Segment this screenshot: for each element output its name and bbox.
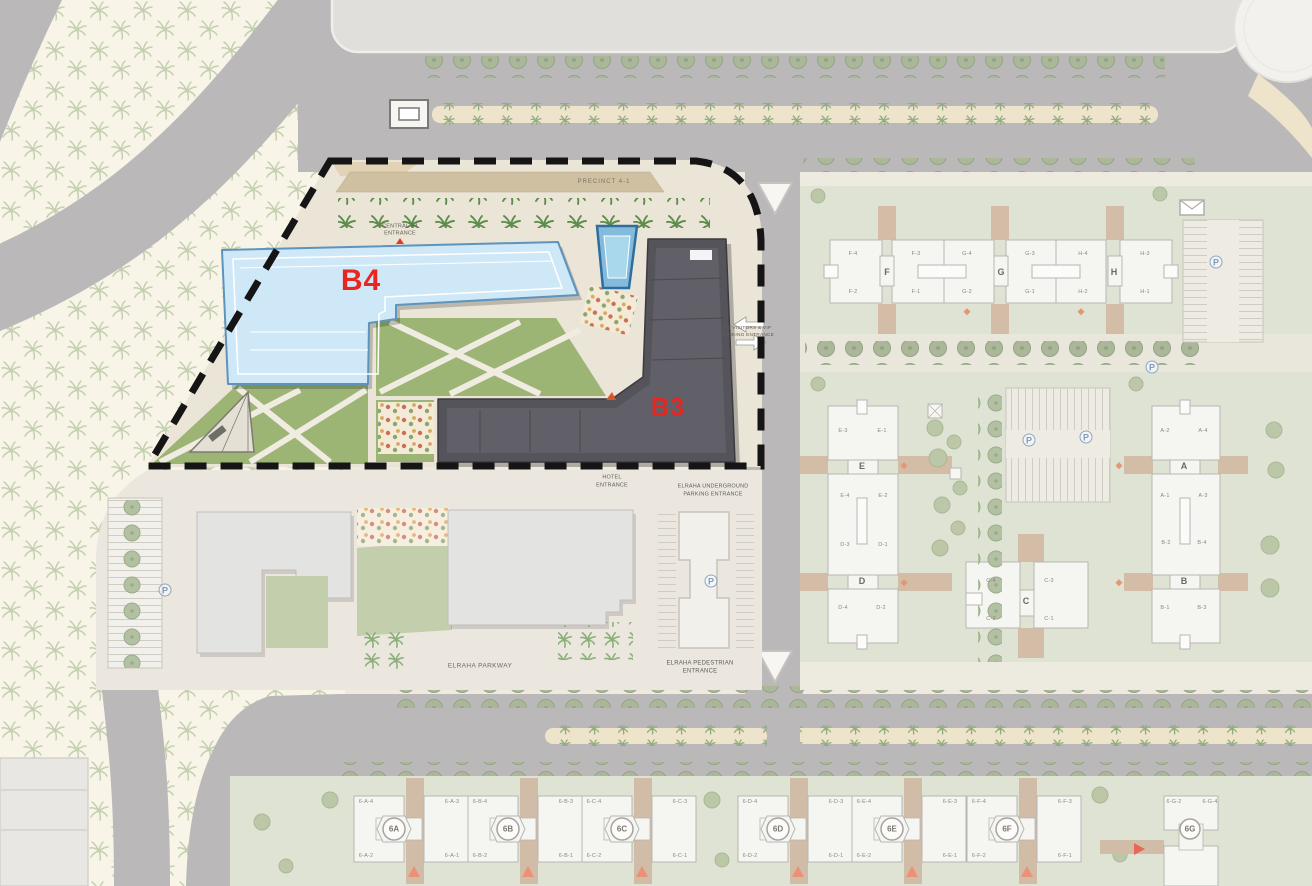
unit-label: 6-B-2 — [473, 853, 487, 859]
underground-note-1: ELRAHA UNDERGROUND — [678, 484, 749, 491]
building-letter-e: E — [859, 461, 865, 471]
unit-label: 6-D-3 — [829, 799, 844, 805]
unit-label: H-2 — [1078, 289, 1087, 295]
unit-label: 6-C-3 — [673, 799, 688, 805]
unit-label: 6-F-3 — [1058, 799, 1072, 805]
unit-label: 6-A-2 — [359, 853, 373, 859]
unit-label: 6-E-4 — [857, 799, 871, 805]
parking-icon-northeast: P — [1210, 256, 1223, 269]
unit-label: 6-E-1 — [943, 853, 957, 859]
unit-label: 6-F-1 — [1058, 853, 1072, 859]
unit-label: A-4 — [1198, 428, 1207, 434]
north-entrance-note-1: CENTRAL B4 — [382, 224, 418, 231]
unit-label: 6-A-1 — [445, 853, 459, 859]
pedestrian-note-1: ELRAHA PEDESTRIAN — [666, 660, 733, 667]
unit-label: G-4 — [962, 251, 972, 257]
b3-roof-core — [690, 250, 712, 260]
building-letter-a: A — [1181, 461, 1188, 471]
unit-label: G-2 — [962, 289, 972, 295]
east-entrance-note-1: B3 VISITORS & VIP — [725, 326, 772, 332]
unit-label: A-3 — [1198, 493, 1207, 499]
unit-label: E-3 — [838, 428, 847, 434]
unit-label: C-4 — [986, 578, 995, 584]
unit-label: 6-C-4 — [587, 799, 602, 805]
unit-label: 6-E-2 — [857, 853, 871, 859]
parking-icon-west: P — [159, 584, 172, 597]
unit-label: E-1 — [877, 428, 886, 434]
underground-note-2: PARKING ENTRANCE — [683, 492, 742, 499]
parking-icon-central-2: P — [1080, 431, 1093, 444]
precinct-sign: PRECINCT 4-1 — [578, 179, 631, 185]
unit-label: 6-C-1 — [673, 853, 688, 859]
site-plan-map: B4 B3 PRECINCT 4-1 CENTRAL B4 ENTRANCE B… — [0, 0, 1312, 886]
unit-label: 6-B-3 — [559, 799, 573, 805]
unit-label: 6-B-4 — [473, 799, 487, 805]
building-letter-c: C — [1023, 596, 1030, 606]
parcel-flower-bed-2-dots — [378, 402, 434, 454]
unit-label: 6-C-2 — [587, 853, 602, 859]
unit-label: H-1 — [1140, 289, 1149, 295]
parking-icon-mid-east: P — [1146, 361, 1159, 374]
east-entrance-note-2: PARKING ENTRANCE — [722, 333, 774, 339]
north-entrance-note-2: ENTRANCE — [384, 231, 416, 238]
unit-label: 6-D-2 — [743, 853, 758, 859]
unit-label: A-2 — [1160, 428, 1169, 434]
unit-label: D-1 — [878, 542, 887, 548]
building-badge-6f: 6F — [1002, 825, 1011, 834]
pedestrian-note-2: ENTRANCE — [683, 668, 718, 675]
unit-label: D-4 — [838, 605, 847, 611]
site-plan-canvas — [0, 0, 1312, 886]
unit-label: F-2 — [849, 289, 858, 295]
building-badge-6a: 6A — [389, 825, 399, 834]
building-badge-6b: 6B — [503, 825, 513, 834]
south-entrance-note-2: ENTRANCE — [596, 483, 628, 490]
building-badge-6g: 6G — [1185, 825, 1196, 834]
unit-label: B-2 — [1161, 540, 1170, 546]
building-letter-h: H — [1111, 267, 1118, 277]
unit-label: E-2 — [878, 493, 887, 499]
unit-label: E-4 — [840, 493, 849, 499]
unit-label: 6-F-4 — [972, 799, 986, 805]
unit-label: 6-D-4 — [743, 799, 758, 805]
building-badge-6c: 6C — [617, 825, 627, 834]
unit-label: B-4 — [1197, 540, 1206, 546]
building-badge-6d: 6D — [773, 825, 783, 834]
unit-label: B-3 — [1197, 605, 1206, 611]
unit-label: A-1 — [1160, 493, 1169, 499]
building-badge-6e: 6E — [887, 825, 897, 834]
unit-label: 6-G-2 — [1166, 799, 1181, 805]
unit-label: G-1 — [1025, 289, 1035, 295]
unit-label: H-3 — [1140, 251, 1149, 257]
building-letter-f: F — [884, 267, 890, 277]
building-letter-d: D — [859, 576, 866, 586]
unit-label: C-3 — [1044, 578, 1053, 584]
unit-label: 6-A-4 — [359, 799, 373, 805]
unit-label: 6-F-2 — [972, 853, 986, 859]
building-letter-b: B — [1181, 576, 1188, 586]
unit-label: F-1 — [912, 289, 921, 295]
unit-label: F-4 — [849, 251, 858, 257]
parking-icon-plaza: P — [705, 575, 718, 588]
unit-label: B-1 — [1160, 605, 1169, 611]
unit-label: G-3 — [1025, 251, 1035, 257]
unit-label: 6-E-3 — [943, 799, 957, 805]
unit-label: 6-G-4 — [1202, 799, 1217, 805]
parkway-label: ELRAHA PARKWAY — [448, 663, 512, 670]
parcel-label-b3[interactable]: B3 — [651, 394, 685, 423]
pool-inner — [604, 236, 630, 278]
unit-label: 6-B-1 — [559, 853, 573, 859]
unit-label: C-2 — [986, 616, 995, 622]
unit-label: H-4 — [1078, 251, 1087, 257]
unit-label: F-3 — [912, 251, 921, 257]
unit-label: 6-D-1 — [829, 853, 844, 859]
unit-label: 6-A-3 — [445, 799, 459, 805]
south-entrance-note-1: HOTEL — [602, 475, 621, 482]
unit-label: D-3 — [840, 542, 849, 548]
parking-icon-central-1: P — [1023, 434, 1036, 447]
building-letter-g: G — [997, 267, 1004, 277]
parcel-label-b4[interactable]: B4 — [341, 264, 381, 298]
unit-label: C-1 — [1044, 616, 1053, 622]
unit-label: D-2 — [876, 605, 885, 611]
